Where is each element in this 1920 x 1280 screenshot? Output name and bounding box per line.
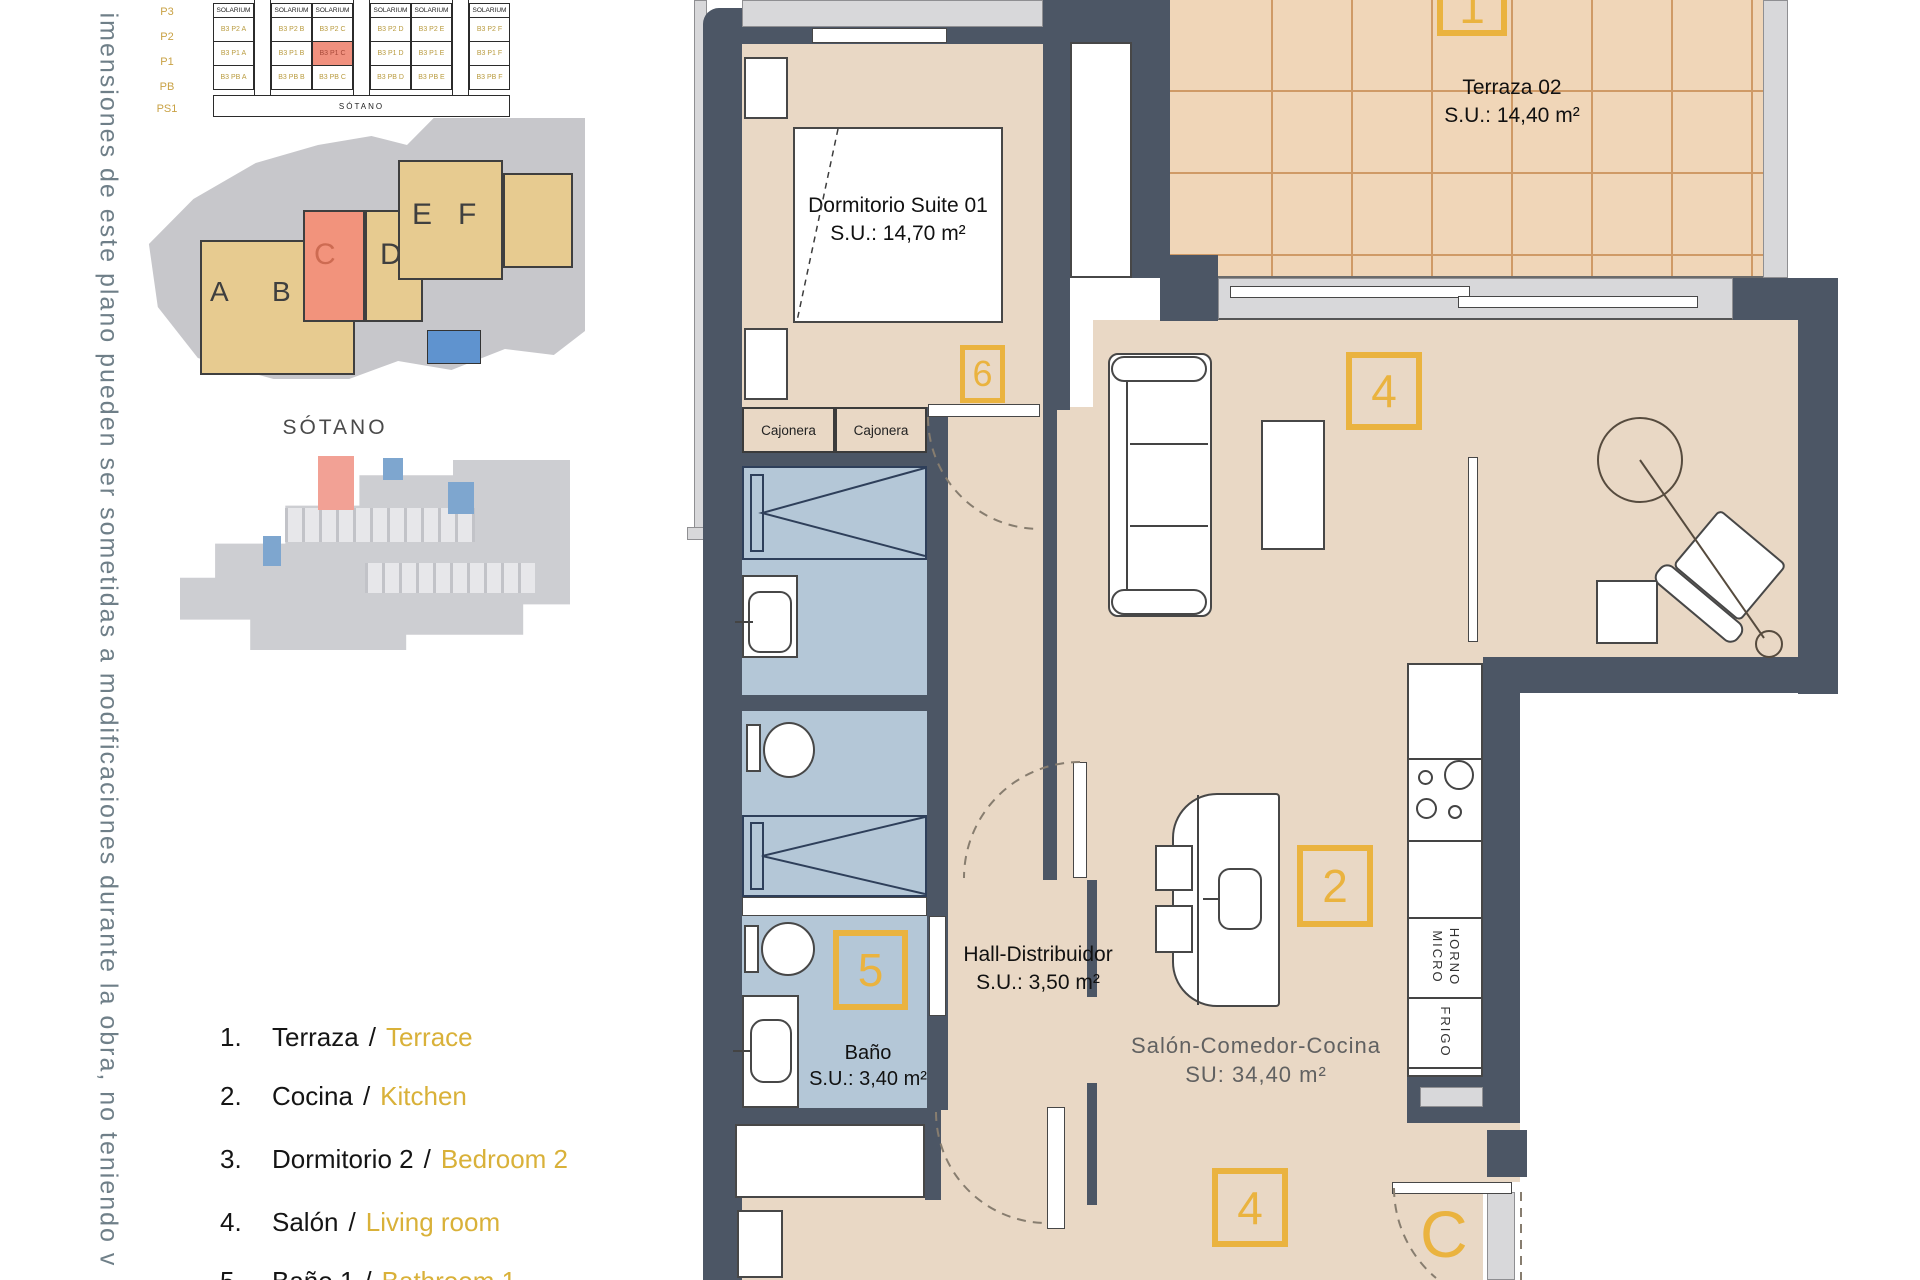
sotano-blue-core [383,458,403,480]
tv-unit [1468,457,1478,642]
unit-cell: B3 PB A [213,65,254,90]
legend-item-salon: 4. Salón / Living room [220,1207,500,1238]
block-letter-a: A [210,276,229,308]
parking-stalls [285,508,475,542]
wall-entry-block [1487,1130,1527,1177]
unit-cell: B3 PB B [271,65,312,90]
legend-sep: / [349,1207,356,1238]
elevation-diagram: P3 P2 P1 PB PS1 SOLARIUM B3 P2 A B3 P1 A… [150,0,518,122]
legend-number: 5. [220,1266,262,1280]
floor-label: P1 [150,56,184,68]
unit-column-c: SOLARIUM B3 P2 C B3 P1 C B3 PB C [312,3,353,98]
legend-es: Baño 1 [272,1266,354,1280]
unit-cell: B3 P2 B [271,17,312,42]
sotano-shape [180,460,570,650]
suite-area: S.U.: 14,70 m² [808,220,988,248]
marker-cocina: 2 [1297,845,1373,927]
unit-column-f: SOLARIUM B3 P2 F B3 P1 F B3 PB F [469,3,510,98]
wall-hall-partition-b [1087,1083,1097,1205]
unit-cell: B3 P1 A [213,41,254,66]
legend-en: Bathroom 1 [382,1266,516,1280]
solarium-header: SOLARIUM [271,3,312,18]
legend-sep: / [363,1081,370,1112]
solarium-header: SOLARIUM [411,3,452,18]
legend-number: 2. [220,1081,262,1112]
island-cabinet [1155,845,1193,891]
nightstand [744,328,788,400]
unit-cell: B3 P2 A [213,17,254,42]
unit-column-a: SOLARIUM B3 P2 A B3 P1 A B3 PB A [213,3,254,98]
cajonera-unit: Cajonera [742,407,835,453]
coffee-table [1261,420,1325,550]
entry-door-leaf [1392,1182,1512,1194]
nightstand [744,57,788,119]
wall-living-bottom [1493,657,1838,693]
bano-door-leaf [929,916,946,1016]
island-line [1197,795,1199,1005]
wall-left [703,8,742,1280]
block-letter-f: F [458,198,476,232]
kitchen-window-inset [1420,1087,1483,1107]
marker-suite: 6 [960,345,1005,403]
sofa-cushion-line [1130,525,1208,527]
legend-item-bano1: 5. Baño 1 / Bathroom 1 [220,1266,516,1280]
block-letter-e: E [412,198,432,232]
wall-right [1798,278,1838,694]
floor-label: PB [150,81,184,93]
pool [427,330,481,364]
wall-closet-right [1132,0,1170,278]
closet-bedroom2 [735,1124,925,1198]
sofa-armrest [1111,356,1207,382]
unit-column-b: SOLARIUM B3 P2 B B3 P1 B B3 PB B [271,3,312,98]
hall-door-leaf [1073,762,1087,878]
solarium-header: SOLARIUM [370,3,411,18]
wall-suite-right [1043,0,1070,410]
bedroom2-door-frame [1047,1107,1065,1229]
horno-text: HORNO [1445,928,1462,986]
terraza-label: Terraza 02 S.U.: 14,40 m² [1444,74,1579,129]
marker-bano: 5 [833,930,908,1010]
legend-number: 4. [220,1207,262,1238]
solarium-header: SOLARIUM [213,3,254,18]
unit-cell: B3 P2 E [411,17,452,42]
suite-overhang-band [742,0,1043,27]
unit-cell-highlighted: B3 P1 C [312,41,353,66]
legend-number: 1. [220,1022,262,1053]
terrace-floor [1170,0,1788,278]
stove-burner [1444,760,1474,790]
entry-landing-strip [1487,1192,1515,1280]
legend-number: 3. [220,1144,262,1175]
unit-cell: B3 PB D [370,65,411,90]
legend-en: Terrace [386,1022,473,1053]
unit-cell: B3 PB E [411,65,452,90]
site-plan: A B C D E F [140,118,585,418]
stove-burner [1418,770,1433,785]
unit-cell: B3 PB F [469,65,510,90]
wall-kitchen-right [1483,657,1520,1123]
stair-core [254,0,271,98]
legend-en: Bedroom 2 [441,1144,568,1175]
legend-sep: / [369,1022,376,1053]
sotano-label: SÓTANO [255,416,415,440]
legend-en: Living room [366,1207,500,1238]
legend-item-dormitorio2: 3. Dormitorio 2 / Bedroom 2 [220,1144,568,1175]
bano-name: Baño [809,1040,927,1066]
hall-area: S.U.: 3,50 m² [963,969,1112,997]
terrace-railing [1763,0,1788,278]
micro-text: MICRO [1428,928,1445,986]
sofa-back-line [1126,381,1128,589]
toilet-tank [744,925,759,973]
stair-core [452,0,469,98]
bath-shelf [742,897,927,916]
legend-sep: / [424,1144,431,1175]
parking-stalls [365,563,535,593]
salon-label: Salón-Comedor-Cocina SU: 34,40 m² [1131,1031,1381,1089]
horno-micro-label: HORNO MICRO [1407,919,1483,995]
wall-corridor-right [1043,407,1057,880]
unit-cell: B3 PB C [312,65,353,90]
block-letter-c: C [314,238,336,272]
hall-label: Hall-Distribuidor S.U.: 3,50 m² [963,941,1112,996]
salon-name: Salón-Comedor-Cocina [1131,1031,1381,1060]
legend-item-terraza: 1. Terraza / Terrace [220,1022,473,1053]
solarium-header: SOLARIUM [312,3,353,18]
frigo-text: FRIGO [1437,1006,1454,1057]
marker-salon-bottom: 4 [1212,1168,1288,1247]
block-letter-b: B [272,276,291,308]
hall-name: Hall-Distribuidor [963,941,1112,969]
island-cabinet [1155,905,1193,953]
sliding-window [1458,296,1698,308]
floor-label: P2 [150,31,184,43]
toilet-tank [746,724,761,772]
unit-column-d: SOLARIUM B3 P2 D B3 P1 D B3 PB D [370,3,411,98]
block-f-annex [503,173,573,268]
sotano-row: SÓTANO [213,95,510,117]
wardrobe-2 [742,815,927,897]
toilet-bowl [763,722,815,778]
sotano-blue-core [263,536,281,566]
terraza-name: Terraza 02 [1444,74,1579,102]
unit-cell: B3 P2 D [370,17,411,42]
suite-window [812,28,947,43]
legend-sep: / [364,1266,371,1280]
sofa-armrest [1111,589,1207,615]
unit-cell: B3 P1 F [469,41,510,66]
unit-cell: B3 P2 F [469,17,510,42]
stove-burner [1416,798,1437,819]
stair-core [353,0,370,98]
sink [748,591,792,653]
suite-door-leaf [928,404,1040,417]
sotano-plan: SÓTANO [165,408,575,653]
disclaimer-vertical-text: imensiones de este plano pueden ser some… [94,13,123,1268]
unit-cell: B3 P1 D [370,41,411,66]
cajonera-unit: Cajonera [835,407,927,453]
legend-en: Kitchen [380,1081,467,1112]
sofa [1108,353,1212,617]
unit-cell: B3 P2 C [312,17,353,42]
unit-letter-c: C [1420,1196,1468,1272]
closet-tall [1070,42,1132,278]
wall-below-cajonera [742,453,927,466]
unit-cell: B3 P1 E [411,41,452,66]
stove-burner [1448,805,1462,819]
legend-item-cocina: 2. Cocina / Kitchen [220,1081,467,1112]
counter-divider [1409,840,1481,842]
wall-bedroom2-stub [925,1108,941,1200]
suite-name: Dormitorio Suite 01 [808,192,988,220]
marker-terraza: 1 [1437,0,1507,36]
salon-area: SU: 34,40 m² [1131,1060,1381,1089]
nightstand [737,1210,783,1278]
solarium-header: SOLARIUM [469,3,510,18]
elevation-grid: SOLARIUM B3 P2 A B3 P1 A B3 PB A SOLARIU… [213,3,510,98]
legend-es: Dormitorio 2 [272,1144,414,1175]
terraza-area: S.U.: 14,40 m² [1444,102,1579,130]
side-table [1596,580,1658,644]
wardrobe-1-bar [750,474,764,552]
counter-divider [1409,758,1481,760]
floor-label: P3 [150,6,184,18]
wall-bath-divider [742,695,927,711]
sliding-window [1230,286,1470,298]
bano-label: Baño S.U.: 3,40 m² [809,1040,927,1093]
sink [750,1019,792,1083]
bano-area: S.U.: 3,40 m² [809,1066,927,1092]
wardrobe-1 [742,466,927,560]
frigo-label: FRIGO [1412,994,1478,1070]
wardrobe-2-bar [750,822,764,890]
wall-terrace-corner [1160,255,1218,321]
legend-es: Cocina [272,1081,353,1112]
floor-label: PS1 [150,103,184,115]
sofa-cushion-line [1130,443,1208,445]
suite-label: Dormitorio Suite 01 S.U.: 14,70 m² [808,192,988,247]
toilet-bowl [761,922,815,976]
sotano-highlight-unit [318,456,354,510]
legend-es: Terraza [272,1022,359,1053]
sotano-blue-core [448,482,474,514]
unit-column-e: SOLARIUM B3 P2 E B3 P1 E B3 PB E [411,3,452,98]
floor-plan-page: imensiones de este plano pueden ser some… [0,0,1920,1280]
wall-bedroom2-top [735,1108,927,1124]
unit-cell: B3 P1 B [271,41,312,66]
island-sink [1218,868,1262,930]
legend-es: Salón [272,1207,339,1238]
marker-salon-top: 4 [1346,352,1422,430]
